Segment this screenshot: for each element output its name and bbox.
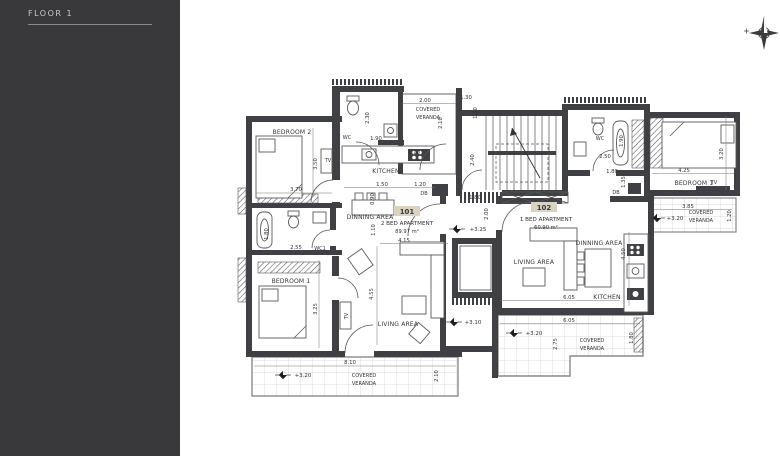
apartment-102-area: 60.90 m² [534, 225, 558, 231]
room-label-kitchen-102: KITCHEN [593, 294, 620, 301]
dim-label: 3.70 [290, 187, 302, 193]
staircase-symbol [486, 116, 568, 203]
dim-label: 1.80 [629, 331, 635, 343]
apartment-101-type: 2 BED APARTMENT [381, 221, 434, 227]
sofa-symbol-101 [348, 242, 444, 344]
tv-unit-symbols [321, 149, 730, 329]
dim-label: 2.30 [365, 111, 371, 123]
room-label-bedroom2: BEDROOM 2 [273, 129, 312, 136]
veranda-top-101-line2: VERANDA [416, 115, 441, 121]
dim-label: 2.75 [553, 338, 559, 350]
apartment-102-type: 1 BED APARTMENT [520, 217, 573, 223]
dim-label: 4.15 [398, 238, 410, 244]
room-label-wc-102: WC [596, 136, 605, 142]
tv-label-bedroom1-102: TV [710, 180, 718, 186]
dim-label: 1.10 [408, 150, 420, 156]
dim-label: 2.10 [434, 369, 440, 381]
db-label-102: DB [612, 190, 620, 196]
dim-label: 4.25 [678, 168, 690, 174]
dim-label: 4.55 [369, 288, 375, 300]
dim-label: 3.25 [313, 303, 319, 315]
floor-plan-page: FLOOR 1 [0, 0, 780, 456]
coffee-table-101 [402, 296, 426, 314]
dim-label: 1.80 [469, 195, 481, 201]
dim-label: 2.00 [484, 207, 490, 219]
veranda-bottom-102-line1: COVERED [580, 338, 605, 344]
veranda-bottom-102 [498, 315, 643, 376]
dim-label: 1.90 [619, 134, 625, 146]
dim-label: 2.55 [290, 245, 302, 251]
dim-label: 1.20 [414, 182, 426, 188]
dim-label: 3.20 [719, 147, 725, 159]
floor-plan-svg: BEDROOM 2 KITCHEN DINNING AREA LIVING AR… [0, 0, 780, 456]
veranda-bottom-101-line1: COVERED [352, 373, 377, 379]
apartment-101-area: 89.97 m² [395, 229, 419, 235]
veranda-right-102-line1: COVERED [689, 210, 714, 216]
room-label-dinning-102: DINNING AREA [576, 240, 623, 247]
room-label-living-101: LIVING AREA [378, 321, 419, 328]
db-label-101: DB [420, 191, 428, 197]
room-label-bedroom1-101: BEDROOM 1 [272, 278, 311, 285]
coffee-table-102 [523, 268, 545, 286]
room-label-wc-101: WC [343, 135, 352, 141]
veranda-right-102-line2: VERANDA [689, 218, 714, 224]
room-label-wc1: WC1 [314, 246, 326, 252]
dim-label: 6.05 [563, 295, 575, 301]
dim-label: 2.50 [599, 154, 611, 160]
kitchen-counter-101 [342, 146, 434, 163]
dining-table-102 [577, 249, 611, 287]
dim-label: 1.10 [371, 223, 377, 235]
room-label-bedroom1-102: BEDROOM 1 [675, 180, 714, 187]
armchair-101b [348, 249, 373, 275]
room-label-kitchen-101: KITCHEN [372, 168, 399, 175]
level-label-landing: +3.25 [470, 227, 487, 233]
bed-symbol-bedroom1-102 [662, 122, 736, 168]
bathroom-101-fixtures [347, 96, 397, 137]
veranda-bottom-102-line2: VERANDA [580, 346, 605, 352]
room-label-living-102: LIVING AREA [514, 259, 555, 266]
level-label-porch: +3.10 [465, 320, 482, 326]
dim-label: 2.00 [419, 98, 431, 104]
compass-icon [744, 16, 779, 50]
tv-label-bedroom2: TV [324, 158, 332, 164]
dim-label: 1.20 [727, 209, 733, 221]
dim-label: 3.85 [682, 204, 694, 210]
dim-label: 0.90 [370, 192, 376, 204]
dim-label: 3.50 [313, 157, 319, 169]
dim-label: 1.50 [376, 182, 388, 188]
veranda-bottom-101-line2: VERANDA [352, 381, 377, 387]
dim-label: 1.35 [621, 176, 627, 188]
dim-label: 4.50 [621, 247, 627, 259]
dim-label: 1.80 [606, 169, 618, 175]
dim-label: 1.30 [460, 95, 472, 101]
dim-label: 1.90 [370, 136, 382, 142]
dim-label: 1.50 [473, 106, 479, 118]
dim-label: 1.80 [264, 227, 270, 239]
dim-label: 6.05 [563, 318, 575, 324]
veranda-top-101-line1: COVERED [416, 107, 441, 113]
dim-label: 2.10 [438, 116, 444, 128]
level-label-veranda-102: +3.20 [526, 331, 543, 337]
dim-label: 2.40 [470, 153, 476, 165]
level-label-veranda-101: +3.20 [295, 373, 312, 379]
tv-label-living-101: TV [344, 312, 350, 320]
apartment-102-number: 102 [537, 204, 552, 212]
bed-symbol-bedroom1-101 [259, 286, 306, 338]
kitchen-counter-102 [624, 234, 648, 312]
apartment-101-number: 101 [400, 208, 415, 216]
level-label-veranda-right-102: +3.20 [667, 216, 684, 222]
room-label-dinning-101: DINNING AREA [347, 214, 394, 221]
dim-label: 8.10 [344, 360, 356, 366]
elevator-shaft [452, 238, 498, 305]
